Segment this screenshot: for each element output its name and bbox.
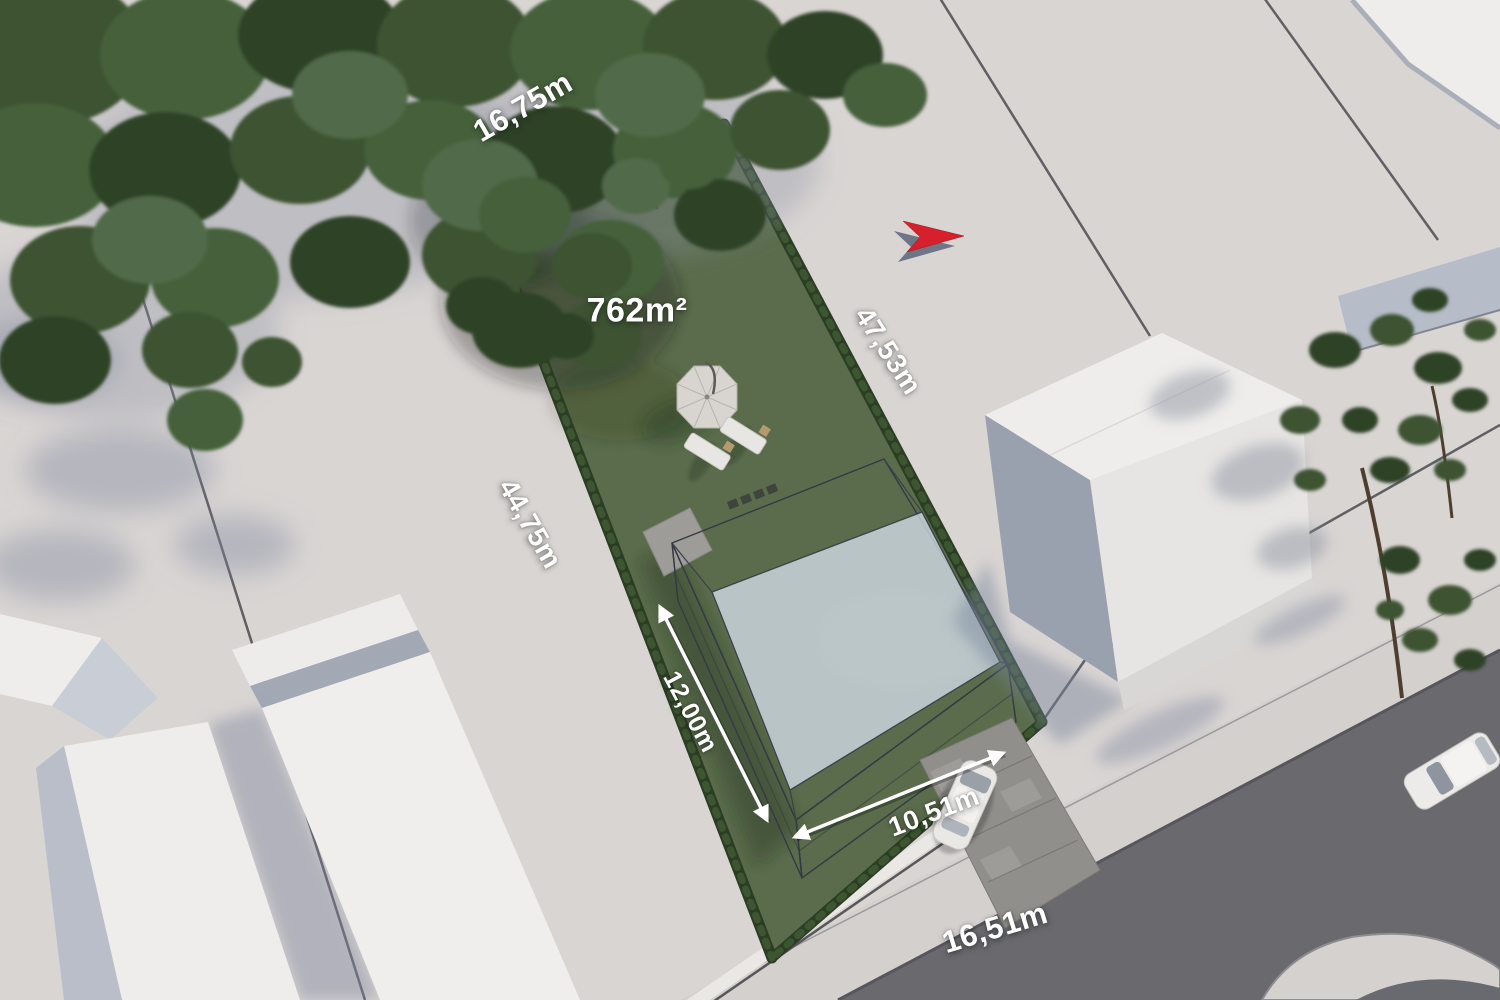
site-plan-render: 16,75m 762m² 47,53m 44,75m 12,00m 10,51m…	[0, 0, 1500, 1000]
area-label: 762m²	[587, 292, 688, 331]
